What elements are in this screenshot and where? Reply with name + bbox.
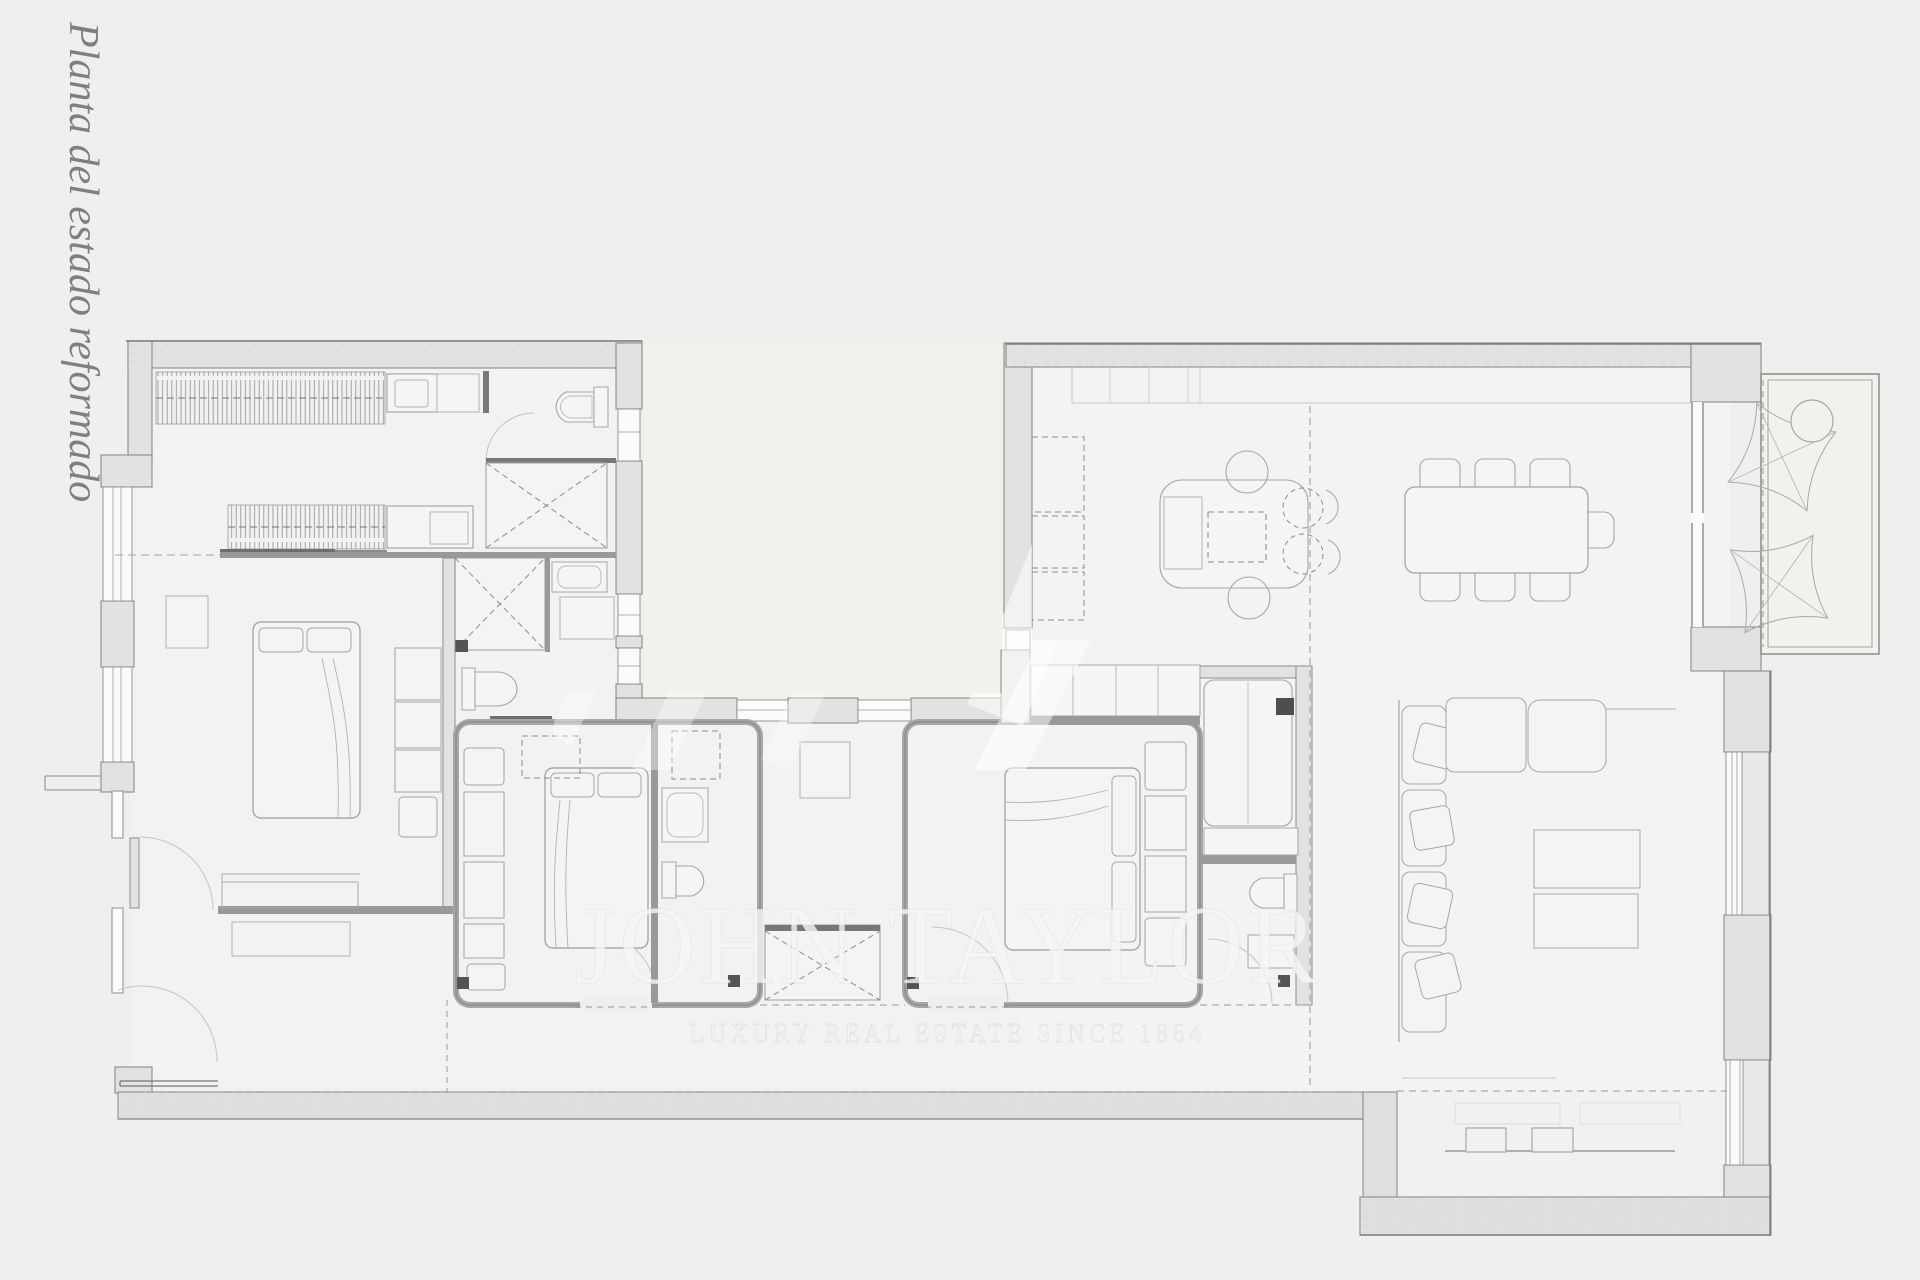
svg-text:LUXURY REAL ESTATE SINCE 1864: LUXURY REAL ESTATE SINCE 1864 <box>690 1018 1206 1048</box>
svg-text:Planta del estado reformado: Planta del estado reformado <box>60 21 106 502</box>
svg-text:JOHN TAYLOR: JOHN TAYLOR <box>574 884 1322 1008</box>
